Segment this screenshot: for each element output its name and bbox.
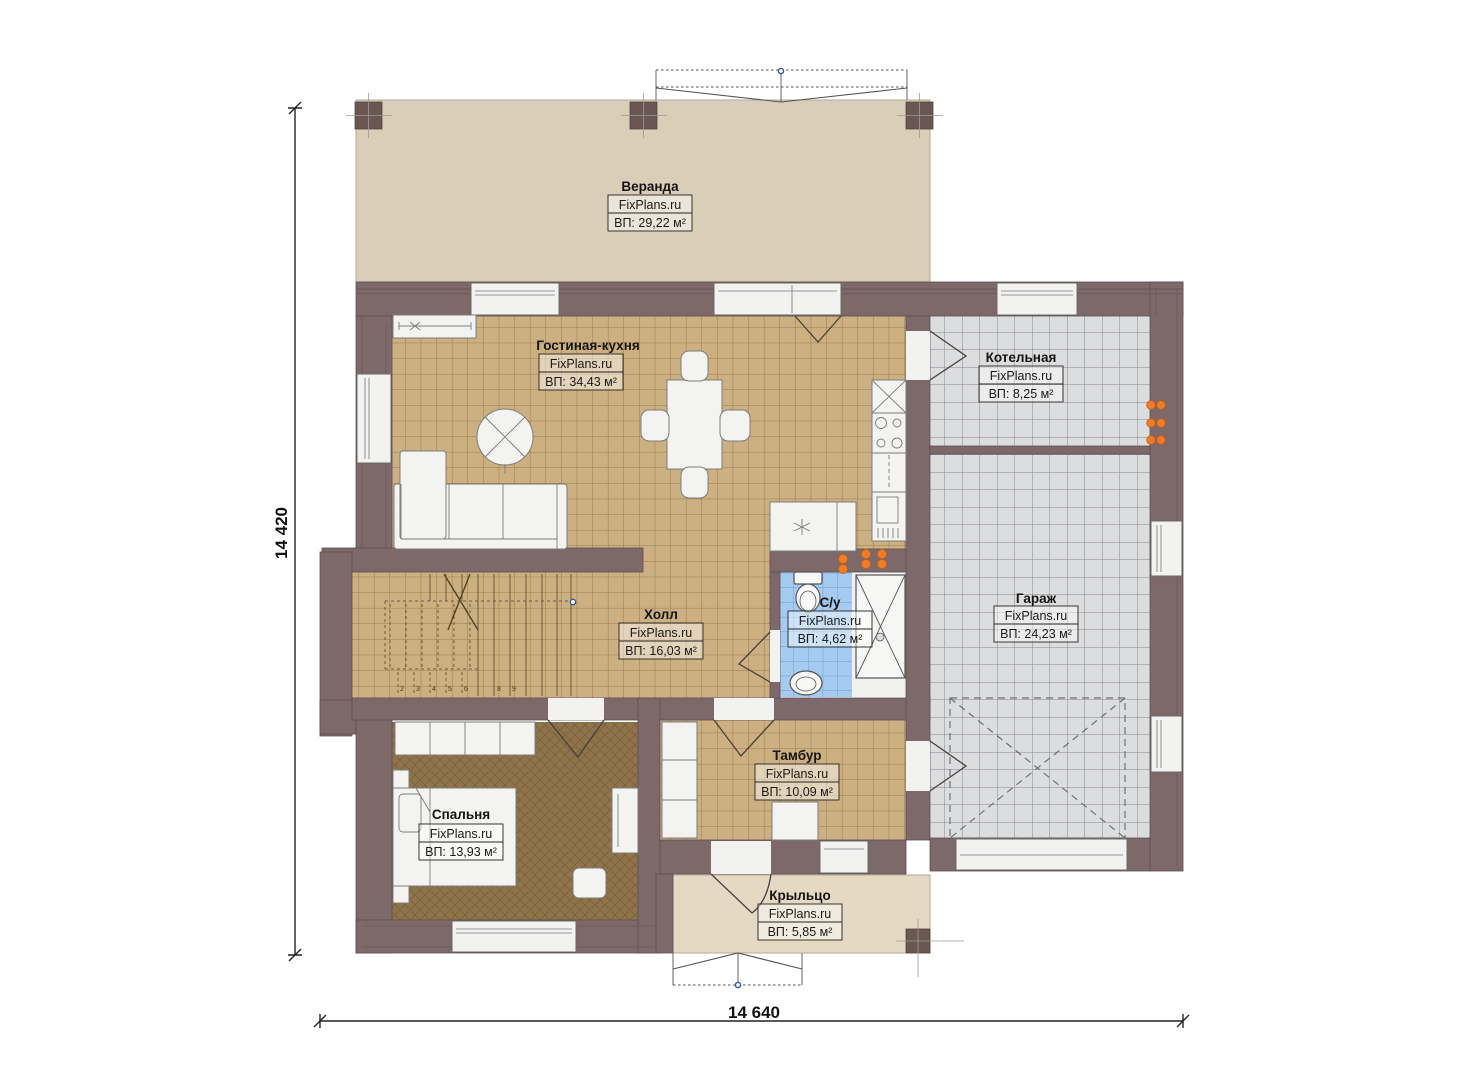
svg-text:8: 8 [497, 686, 501, 693]
svg-text:ВП: 4,62 м²: ВП: 4,62 м² [798, 632, 863, 646]
svg-text:ВП: 29,22 м²: ВП: 29,22 м² [614, 216, 686, 230]
svg-text:Гараж: Гараж [1016, 591, 1057, 606]
svg-text:2: 2 [400, 686, 404, 693]
svg-text:3: 3 [416, 686, 420, 693]
svg-text:ВП: 24,23 м²: ВП: 24,23 м² [1000, 627, 1072, 641]
svg-text:FixPlans.ru: FixPlans.ru [769, 907, 832, 921]
svg-text:Спальня: Спальня [432, 807, 490, 822]
svg-text:ВП: 8,25 м²: ВП: 8,25 м² [989, 387, 1054, 401]
svg-text:4: 4 [432, 686, 436, 693]
svg-text:ВП: 5,85 м²: ВП: 5,85 м² [768, 925, 833, 939]
svg-text:Котельная: Котельная [986, 350, 1057, 365]
svg-text:FixPlans.ru: FixPlans.ru [1005, 609, 1068, 623]
svg-text:FixPlans.ru: FixPlans.ru [630, 626, 693, 640]
svg-text:С/у: С/у [819, 595, 841, 610]
svg-text:5: 5 [448, 686, 452, 693]
svg-text:FixPlans.ru: FixPlans.ru [619, 198, 682, 212]
svg-text:ВП: 16,03 м²: ВП: 16,03 м² [625, 644, 697, 658]
svg-text:FixPlans.ru: FixPlans.ru [799, 614, 862, 628]
svg-text:ВП: 34,43 м²: ВП: 34,43 м² [545, 375, 617, 389]
svg-text:FixPlans.ru: FixPlans.ru [430, 827, 493, 841]
svg-text:Веранда: Веранда [621, 179, 679, 194]
svg-text:6: 6 [464, 686, 468, 693]
svg-text:FixPlans.ru: FixPlans.ru [766, 767, 829, 781]
svg-text:Гостиная-кухня: Гостиная-кухня [536, 338, 639, 353]
svg-text:ВП: 13,93 м²: ВП: 13,93 м² [425, 845, 497, 859]
svg-text:FixPlans.ru: FixPlans.ru [990, 369, 1053, 383]
svg-text:ВП: 10,09 м²: ВП: 10,09 м² [761, 785, 833, 799]
svg-text:Крыльцо: Крыльцо [769, 888, 830, 903]
svg-text:Холл: Холл [644, 607, 678, 622]
svg-text:Тамбур: Тамбур [773, 748, 822, 763]
svg-text:FixPlans.ru: FixPlans.ru [550, 357, 613, 371]
svg-text:9: 9 [512, 686, 516, 693]
svg-text:14 420: 14 420 [272, 507, 291, 559]
svg-text:14 640: 14 640 [728, 1003, 780, 1022]
